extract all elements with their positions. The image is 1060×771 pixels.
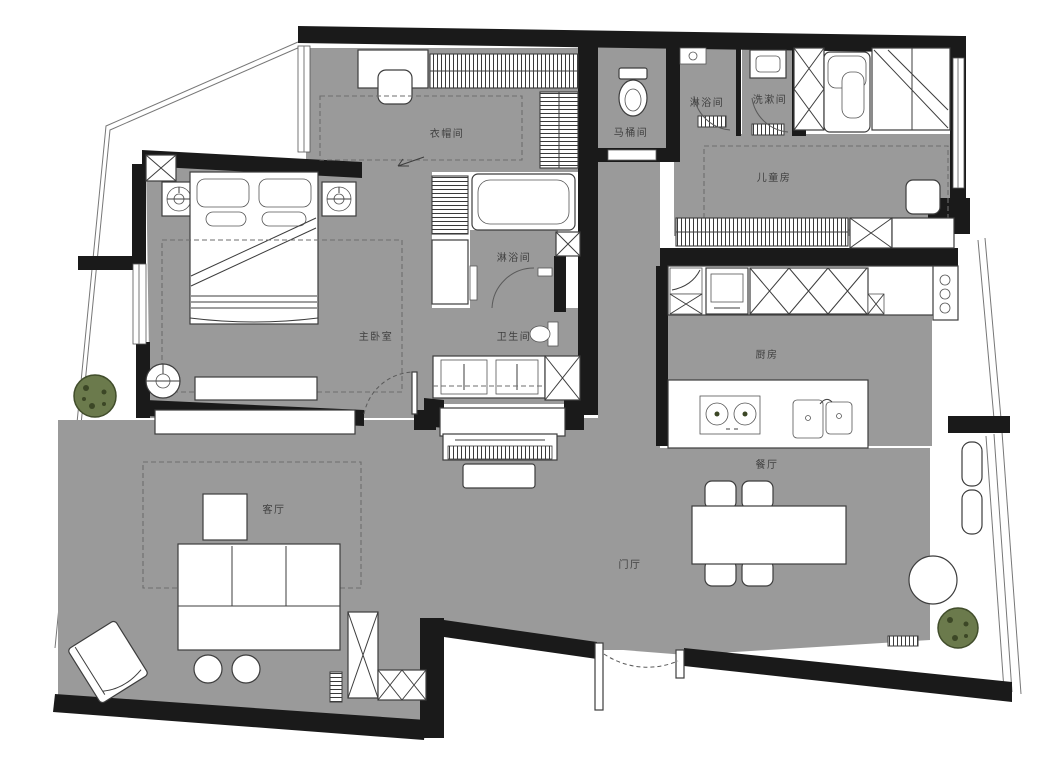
door-jamb [676,650,684,678]
plant-right-balcony [938,608,978,648]
master-bed [190,172,318,324]
vanity [433,356,545,398]
fridge [670,268,702,294]
kids-side-table [906,180,940,214]
cushion [206,212,246,226]
floor-vent [888,636,918,646]
kids-wardrobe-left [794,48,824,130]
label-kids-room: 儿童房 [757,171,792,184]
kids-bed [824,52,870,132]
label-washroom: 洗漱间 [753,93,788,106]
label-shower-top: 淋浴间 [690,96,725,109]
counter-xcells [750,268,884,314]
toilet-room-fixtures [619,68,647,116]
label-kitchen: 厨房 [756,348,779,361]
bath-shelf [432,176,468,234]
label-cloakroom: 衣帽间 [430,127,465,140]
label-shower-mid: 淋浴间 [497,251,532,264]
dining-chair [705,481,736,509]
nightstand-right [322,182,356,216]
wall-niche [440,408,565,436]
tv-console [155,410,355,434]
island-sink [793,399,852,438]
floor-plan-drawing: 衣帽间 马桶间 淋浴间 洗漱间 儿童房 主卧室 淋浴间 卫生间 厨房 餐厅 客厅… [0,0,1060,771]
window-master-left [133,264,146,344]
window-kids-right [953,58,964,188]
piano [443,434,557,460]
label-living: 客厅 [263,503,286,516]
kids-counter [892,218,954,248]
dining-table [692,506,846,564]
label-master-bedroom: 主卧室 [359,330,394,343]
sofa [178,544,340,650]
balcony-cushion [962,490,982,534]
coffee-table [203,494,247,540]
counter-xbox-small [670,294,702,314]
shower-column [470,266,477,300]
label-foyer: 门厅 [619,558,642,571]
bathtub [472,174,575,230]
bath-cabinet [432,240,468,304]
stove [700,396,760,434]
kids-desk-wardrobe [872,48,950,130]
shower-valve [538,268,552,276]
bath-xbox [556,232,580,256]
label-bathroom: 卫生间 [497,330,532,343]
dining-chair [742,481,773,509]
pouf [194,655,222,683]
oven [706,268,748,314]
piano-bench [463,464,535,488]
pillow [259,179,311,207]
kitchen-shelf [933,266,958,320]
cushion [262,212,306,226]
window-cloakroom-left [298,46,310,152]
floor-vent [330,672,342,702]
pouf [232,655,260,683]
balcony-round-table [909,556,957,604]
cloakroom-ottoman [378,70,412,104]
towel-rail [698,116,726,127]
door-jamb [595,643,603,710]
floor-plan-canvas: 衣帽间 马桶间 淋浴间 洗漱间 儿童房 主卧室 淋浴间 卫生间 厨房 餐厅 客厅… [0,0,1060,771]
towel-rail [752,124,784,135]
toilet-tank [619,68,647,79]
master-dresser [195,377,317,400]
round-side-table [146,364,180,398]
vanity-xbox [545,356,580,400]
plant-left-balcony [74,375,116,417]
column-xbox [146,155,176,181]
toilet-room-door-sill [608,150,656,160]
kitchen-island [668,380,868,448]
kids-cabinet-x [850,218,892,248]
label-dining: 餐厅 [756,458,779,471]
label-toilet-room: 马桶间 [614,126,649,139]
balcony-cushion [962,442,982,486]
pillow [197,179,249,207]
